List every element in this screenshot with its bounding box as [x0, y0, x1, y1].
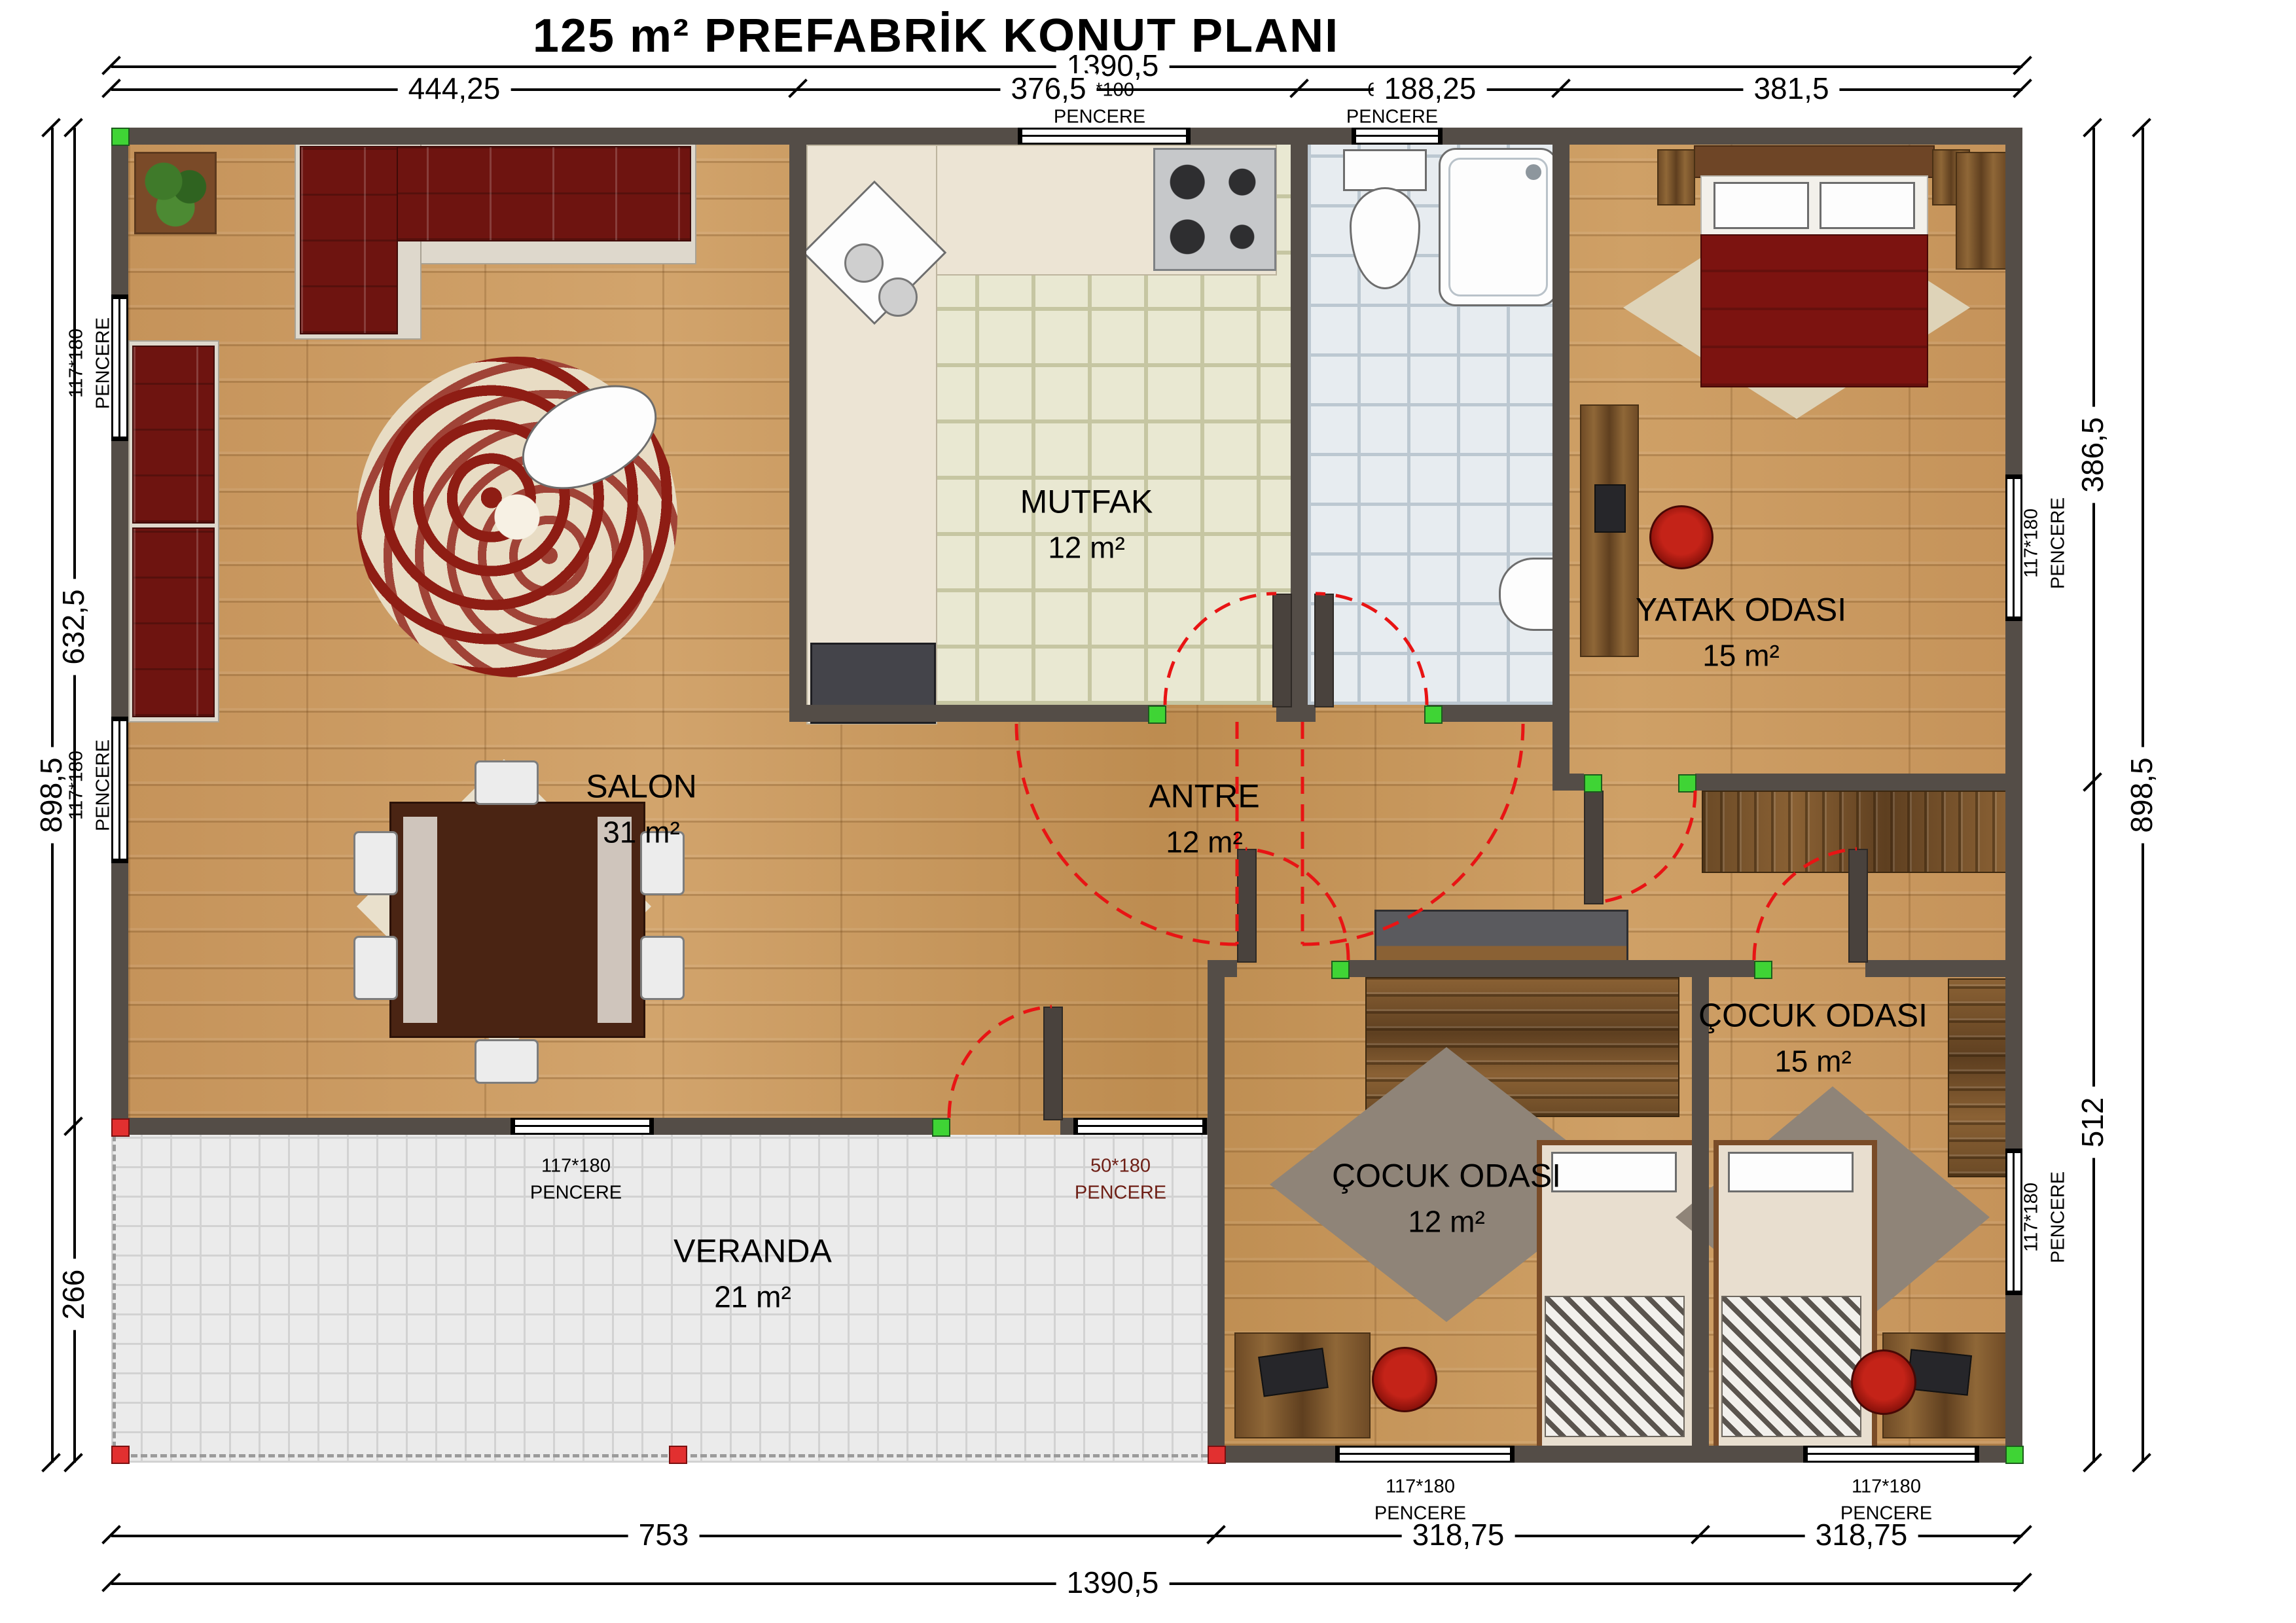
dim-bottom-seg: 318,75: [1805, 1520, 1918, 1550]
dim-right-seg: 386,5: [2077, 406, 2108, 503]
window-label-salon-bottom: 117*180 PENCERE: [530, 1152, 622, 1205]
room-label-antre: ANTRE 12 m²: [1149, 772, 1259, 863]
room-label-veranda: VERANDA 21 m²: [673, 1227, 832, 1318]
room-area: 15 m²: [1698, 1039, 1928, 1083]
window-label-bedroom-right: 117*180 PENCERE: [2018, 497, 2071, 589]
dim-bottom-seg: 318,75: [1402, 1520, 1515, 1550]
room-name: ÇOCUK ODASI: [1332, 1157, 1561, 1194]
window-size: 50*180: [1090, 1155, 1151, 1176]
dim-left-seg: 266: [58, 1259, 88, 1330]
window-size: 117*180: [1386, 1476, 1455, 1497]
dim-left-outer: 898,5: [36, 747, 66, 843]
door-swing-bath-hall: [1302, 724, 1523, 944]
window-label-veranda-entry: 50*180 PENCERE: [1075, 1152, 1166, 1205]
dim-bottom-seg: 753: [628, 1520, 700, 1550]
room-name: MUTFAK: [1020, 483, 1153, 520]
window-size: 117*180: [2020, 1183, 2041, 1252]
room-name: ÇOCUK ODASI: [1698, 997, 1928, 1033]
room-name: YATAK ODASI: [1636, 591, 1846, 628]
dim-right-seg: 512: [2077, 1087, 2108, 1158]
dim-bottom-total: 1390,5: [1056, 1567, 1170, 1597]
room-name: SALON: [586, 768, 697, 804]
window-word: PENCERE: [1346, 106, 1438, 127]
window-size: 117*180: [65, 751, 86, 820]
window-size: 117*180: [65, 329, 86, 398]
room-label-cocuk15: ÇOCUK ODASI 15 m²: [1698, 991, 1928, 1082]
room-label-cocuk12: ÇOCUK ODASI 12 m²: [1332, 1152, 1561, 1243]
room-label-mutfak: MUTFAK 12 m²: [1020, 478, 1153, 569]
door-swing-bedroom: [1601, 791, 1695, 902]
window-word: PENCERE: [1075, 1182, 1166, 1203]
door-swing-bath: [1316, 594, 1427, 705]
room-area: 31 m²: [586, 810, 697, 854]
room-area: 12 m²: [1020, 526, 1153, 569]
window-label-salon-left-upper: 117*180 PENCERE: [63, 317, 116, 409]
window-size: 117*180: [541, 1155, 611, 1176]
door-swing-entrance: [949, 1007, 1052, 1118]
room-label-salon: SALON 31 m²: [586, 762, 697, 853]
door-swing-overlay: [0, 0, 2296, 1623]
window-label-kids15-right: 117*180 PENCERE: [2018, 1171, 2071, 1263]
window-word: PENCERE: [2047, 1171, 2068, 1263]
room-label-yatak: YATAK ODASI 15 m²: [1636, 586, 1846, 677]
window-size: 117*180: [1852, 1476, 1921, 1497]
dim-top-seg: 188,25: [1374, 73, 1487, 103]
window-label-salon-left-lower: 117*180 PENCERE: [63, 740, 116, 831]
dim-right-outer: 898,5: [2126, 747, 2157, 843]
door-swing-kitchen: [1165, 594, 1276, 705]
window-word: PENCERE: [92, 740, 113, 831]
dim-top-seg: 381,5: [1743, 73, 1839, 103]
door-swing-kids15: [1754, 849, 1857, 960]
floor-plan-page: 125 m² PREFABRİK KONUT PLANI: [0, 0, 2296, 1623]
dim-top-seg: 444,25: [398, 73, 511, 103]
dim-line-right-segments: [2092, 128, 2095, 1463]
window-word: PENCERE: [530, 1182, 622, 1203]
room-area: 15 m²: [1636, 633, 1846, 677]
dim-left-seg: 632,5: [58, 579, 88, 675]
window-word: PENCERE: [2047, 497, 2068, 589]
room-name: VERANDA: [673, 1232, 832, 1269]
window-size: 117*180: [2020, 508, 2041, 578]
room-area: 12 m²: [1332, 1200, 1561, 1243]
window-word: PENCERE: [92, 317, 113, 409]
dim-top-seg: 376,5: [1000, 73, 1096, 103]
room-name: ANTRE: [1149, 777, 1259, 814]
room-area: 12 m²: [1149, 820, 1259, 864]
room-area: 21 m²: [673, 1275, 832, 1319]
dim-line-bottom-segments: [111, 1535, 2022, 1537]
window-word: PENCERE: [1054, 106, 1145, 127]
